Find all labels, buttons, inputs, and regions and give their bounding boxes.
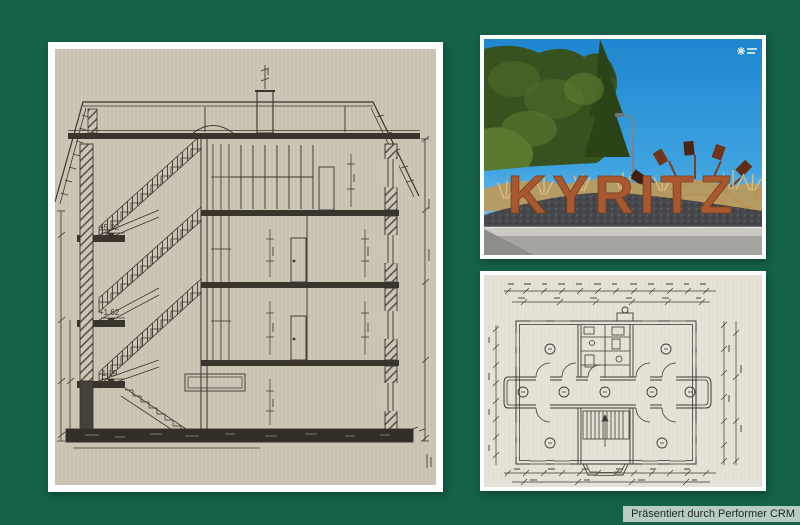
elevation-label-upper: +5.02 [99, 223, 120, 232]
town-sign-text: KYRITZ [508, 165, 739, 225]
elevation-label-middle: +1.62 [99, 308, 120, 317]
cross-section-drawing: +5.02 +1.62 -1.19 [55, 49, 436, 485]
town-sign-photo-panel: KYRITZ [480, 35, 766, 259]
elevation-label-lower: -1.19 [99, 369, 118, 378]
cross-section-panel: +5.02 +1.62 -1.19 [48, 42, 443, 492]
crm-caption: Präsentiert durch Performer CRM [623, 506, 800, 522]
town-sign-photo: KYRITZ [484, 39, 762, 255]
floor-plan-drawing [484, 275, 762, 487]
floor-plan-panel [480, 271, 766, 491]
collage-background: +5.02 +1.62 -1.19 [0, 0, 800, 525]
curb-and-road [484, 227, 762, 255]
